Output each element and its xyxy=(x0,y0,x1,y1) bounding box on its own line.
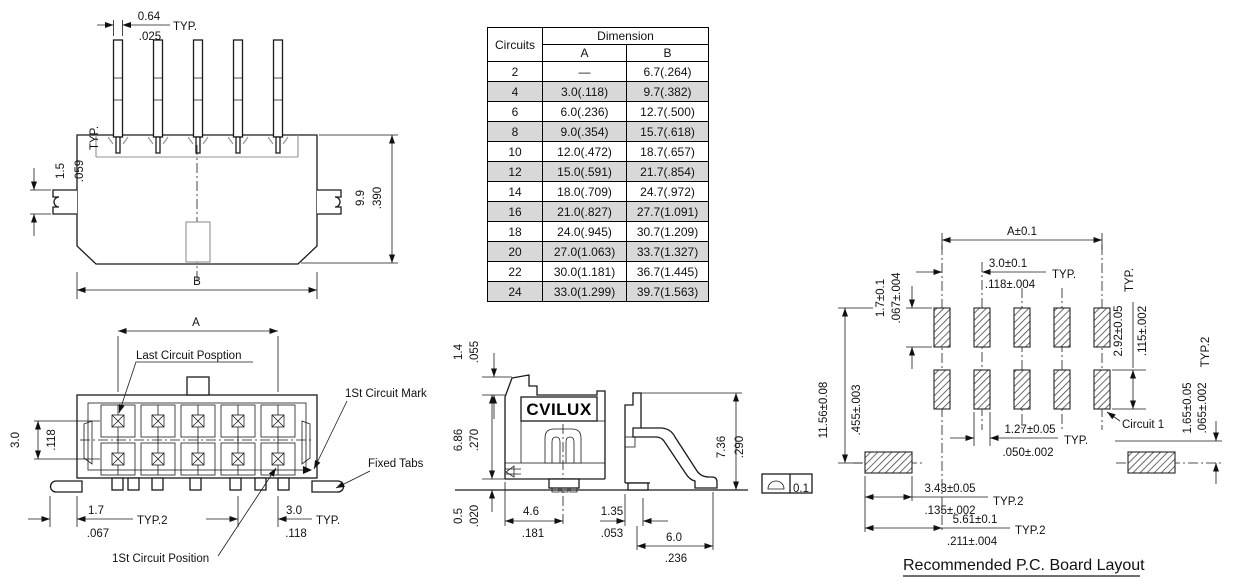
dim-latch-mm: 1.4 xyxy=(453,343,465,360)
dimension-lead-setback: 1.35 .053 xyxy=(600,494,668,540)
pcb-layout-title-text: Recommended P.C. Board Layout xyxy=(903,557,1145,574)
dim-pad-span: A±0.1 xyxy=(1007,226,1037,238)
dimension-circuit-pitch: 3.0 .118 TYP. xyxy=(206,496,340,540)
dimension-overall-width: B xyxy=(77,272,317,299)
rear-wall-profile xyxy=(625,393,641,483)
dim-tab-offset-in: .067 xyxy=(87,528,109,540)
table-row: 89.0(.354)15.7(.618) xyxy=(488,122,709,142)
cell-circuits: 8 xyxy=(488,122,543,142)
cell-b: 27.7(1.091) xyxy=(627,202,709,222)
dimension-foot-length: 6.0 .236 xyxy=(637,492,713,565)
dimension-table-container: Circuits Dimension A B 2—6.7(.264) 43.0(… xyxy=(487,27,709,302)
callout-first-circuit-mark: 1St Circuit Mark xyxy=(314,388,427,469)
right-nail-pad xyxy=(1128,452,1175,473)
cell-a: 27.0(1.063) xyxy=(543,242,627,262)
dimension-pad-width: 1.27±0.05 .050±.002 TYP. xyxy=(950,412,1088,459)
cell-b: 21.7(.854) xyxy=(627,162,709,182)
last-circuit-label: Last Circuit Posption xyxy=(136,350,241,362)
solder-tail xyxy=(549,479,579,488)
corner-typ2-label: TYP.2 xyxy=(1200,337,1212,367)
pad-centerlines xyxy=(853,245,1222,532)
standoff-lines xyxy=(505,463,521,477)
dimension-pin-width: 0.64 .025 TYP. xyxy=(97,11,197,43)
dim-row-gap-in: .115±.002 xyxy=(1137,306,1149,356)
cell-a: 33.0(1.299) xyxy=(543,282,627,302)
table-row: 1621.0(.827)27.7(1.091) xyxy=(488,202,709,222)
dimension-terminal-center: 4.6 .181 xyxy=(505,482,563,540)
cell-a: 21.0(.827) xyxy=(543,202,627,222)
dim-housing-in: .270 xyxy=(469,429,481,451)
dim-row-pitch-mm: 3.0 xyxy=(10,432,22,448)
dim-nail-offset-h-mm: 5.61±0.1 xyxy=(953,514,998,526)
engineering-drawing-sheet: 0.64 .025 TYP. 1.5 .059 TYP. 9.9 .390 B xyxy=(0,0,1241,582)
left-solder-foot xyxy=(51,481,83,492)
table-row: 1012.0(.472)18.7(.657) xyxy=(488,142,709,162)
callout-circuit-1: Circuit 1 xyxy=(1107,412,1164,431)
circuit-1-label: Circuit 1 xyxy=(1122,419,1164,431)
dimension-tab-offset: 1.7 .067 TYP.2 xyxy=(28,496,167,540)
dim-center-mm: 4.6 xyxy=(523,506,539,518)
dim-pad-pitch-in: .118±.004 xyxy=(985,279,1036,291)
table-header-row: Circuits Dimension xyxy=(488,28,709,45)
cell-circuits: 22 xyxy=(488,262,543,282)
cell-b: 18.7(.657) xyxy=(627,142,709,162)
dim-latch-in: .055 xyxy=(469,341,481,363)
dimension-pad-span: A±0.1 xyxy=(942,226,1102,250)
dim-tab-offset-typ: TYP.2 xyxy=(137,515,167,527)
dim-nail-offset-h-typ: TYP.2 xyxy=(1015,525,1045,537)
table-row: 1824.0(.945)30.7(1.209) xyxy=(488,222,709,242)
dim-circuit-pitch-mm: 3.0 xyxy=(286,505,302,517)
front-body-outline xyxy=(77,395,317,478)
brand-logo: CVILUX xyxy=(526,400,592,419)
side-view-smt: CVILUX 1.4 .055 6.86 .270 0.5 .020 xyxy=(453,341,812,565)
right-fixed-tab xyxy=(317,190,341,214)
dim-overall-height-mm: 7.36 xyxy=(716,436,728,458)
pcb-layout-title: Recommended P.C. Board Layout xyxy=(903,557,1145,576)
cell-b: 36.7(1.445) xyxy=(627,262,709,282)
dim-standoff-in: .020 xyxy=(469,505,481,527)
cell-b: 33.7(1.327) xyxy=(627,242,709,262)
dim-lead-mm: 1.35 xyxy=(601,506,623,518)
dimension-layout-height: 11.56±0.08 .455±.003 xyxy=(818,308,873,463)
cell-b: 6.7(.264) xyxy=(627,62,709,82)
dim-tab-in: .059 xyxy=(74,160,86,182)
dim-span-a-label: A xyxy=(192,317,200,329)
cell-b: 39.7(1.563) xyxy=(627,282,709,302)
cell-a: — xyxy=(543,62,627,82)
first-circuit-position-label: 1St Circuit Position xyxy=(112,553,209,565)
left-fixed-tab xyxy=(53,190,77,214)
dim-pin-width-in: .025 xyxy=(139,31,161,43)
cell-circuits: 2 xyxy=(488,62,543,82)
left-nail-pad xyxy=(865,452,912,473)
dim-layout-height-mm: 11.56±0.08 xyxy=(818,382,830,439)
dim-nail-width-mm: 3.43±0.05 xyxy=(924,483,975,495)
polarizing-post xyxy=(186,222,210,262)
column-header-b: B xyxy=(627,45,709,62)
dim-tab-offset-mm: 1.7 xyxy=(88,505,104,517)
flatness-control-frame: 0.1 xyxy=(762,474,812,495)
cell-b: 30.7(1.209) xyxy=(627,222,709,242)
dim-pin-width-mm: 0.64 xyxy=(138,11,161,23)
cell-a: 9.0(.354) xyxy=(543,122,627,142)
dim-center-in: .181 xyxy=(522,528,544,540)
dim-housing-mm: 6.86 xyxy=(453,429,465,451)
dim-circuit-pitch-in: .118 xyxy=(285,528,307,540)
column-header-dimension: Dimension xyxy=(543,28,709,45)
column-header-a: A xyxy=(543,45,627,62)
cell-b: 9.7(.382) xyxy=(627,82,709,102)
dim-row-gap-typ: TYP. xyxy=(1124,268,1136,292)
dim-tab-mm: 1.5 xyxy=(55,163,67,179)
table-row: 43.0(.118)9.7(.382) xyxy=(488,82,709,102)
dim-pin-width-typ: TYP. xyxy=(173,21,197,33)
cell-b: 12.7(.500) xyxy=(627,102,709,122)
cell-a: 24.0(.945) xyxy=(543,222,627,242)
dim-pad-width-mm: 1.27±0.05 xyxy=(1004,424,1055,436)
flatness-value: 0.1 xyxy=(793,483,809,495)
dim-overall-height-in: .290 xyxy=(734,436,746,458)
cell-circuits: 18 xyxy=(488,222,543,242)
cell-circuits: 16 xyxy=(488,202,543,222)
cell-circuits: 14 xyxy=(488,182,543,202)
dim-pad-length-mm: 1.7±0.1 xyxy=(875,279,887,317)
table-row: 2027.0(1.063)33.7(1.327) xyxy=(488,242,709,262)
dim-pad-pitch-typ: TYP. xyxy=(1052,269,1076,281)
dim-overall-width-label: B xyxy=(193,276,201,288)
dim-standoff-mm: 0.5 xyxy=(453,508,465,524)
dimension-row-gap: 2.92±0.05 .115±.002 TYP. xyxy=(1112,268,1149,409)
cell-circuits: 6 xyxy=(488,102,543,122)
cell-circuits: 4 xyxy=(488,82,543,102)
callout-fixed-tabs: Fixed Tabs xyxy=(336,458,424,488)
dim-pad-width-typ: TYP. xyxy=(1064,435,1088,447)
dim-pad-width-in: .050±.002 xyxy=(1002,447,1053,459)
cell-a: 3.0(.118) xyxy=(543,82,627,102)
housing-left-profile xyxy=(505,378,512,479)
dim-body-height-in: .390 xyxy=(372,187,384,209)
dim-layout-height-in: .455±.003 xyxy=(851,384,863,435)
cell-a: 15.0(.591) xyxy=(543,162,627,182)
dim-tab-typ: TYP. xyxy=(89,126,101,150)
table-row: 66.0(.236)12.7(.500) xyxy=(488,102,709,122)
polarizing-key xyxy=(187,377,209,395)
dim-foot-in: .236 xyxy=(665,553,687,565)
dim-row-gap-mm: 2.92±0.05 xyxy=(1113,305,1125,356)
circuit-pads xyxy=(934,308,1110,409)
dim-lead-in: .053 xyxy=(601,528,623,540)
dimension-housing-height: 6.86 .270 xyxy=(453,395,505,479)
dimension-latch-height: 1.4 .055 xyxy=(453,341,512,419)
table-row: 2—6.7(.264) xyxy=(488,62,709,82)
cell-a: 12.0(.472) xyxy=(543,142,627,162)
dim-nail-offset-h-in: .211±.004 xyxy=(947,536,998,548)
dimension-nail-pad-offset-h: 5.61±0.1 .211±.004 TYP.2 xyxy=(865,514,1045,548)
column-header-circuits: Circuits xyxy=(488,28,543,62)
dim-circuit-pitch-typ: TYP. xyxy=(316,515,340,527)
dimension-pad-pitch: 3.0±0.1 .118±.004 TYP. xyxy=(916,258,1076,291)
cell-circuits: 20 xyxy=(488,242,543,262)
table-row: 1418.0(.709)24.7(.972) xyxy=(488,182,709,202)
cell-circuits: 12 xyxy=(488,162,543,182)
cell-circuits: 24 xyxy=(488,282,543,302)
wall-notch xyxy=(625,437,635,447)
circuits-dimension-table: Circuits Dimension A B 2—6.7(.264) 43.0(… xyxy=(487,27,709,302)
dim-nail-offset-v-mm: 1.65±0.05 xyxy=(1182,382,1194,433)
first-circuit-mark-label: 1St Circuit Mark xyxy=(345,388,427,400)
table-row: 1215.0(.591)21.7(.854) xyxy=(488,162,709,182)
cell-a: 6.0(.236) xyxy=(543,102,627,122)
pcb-layout: A±0.1 3.0±0.1 .118±.004 TYP. 1.7±0.1 .06… xyxy=(818,226,1222,576)
dim-pad-pitch-mm: 3.0±0.1 xyxy=(989,258,1027,270)
dim-body-height-mm: 9.9 xyxy=(355,190,367,206)
dimension-standoff: 0.5 .020 xyxy=(453,490,492,527)
dim-row-pitch-in: .118 xyxy=(46,429,58,451)
cell-a: 30.0(1.181) xyxy=(543,262,627,282)
top-side-view: 0.64 .025 TYP. 1.5 .059 TYP. 9.9 .390 B xyxy=(30,11,398,299)
dim-nail-width-typ: TYP.2 xyxy=(993,496,1023,508)
cell-a: 18.0(.709) xyxy=(543,182,627,202)
cell-b: 15.7(.618) xyxy=(627,122,709,142)
dimension-pad-length: 1.7±0.1 .067±.004 xyxy=(875,272,932,369)
table-row: 2433.0(1.299)39.7(1.563) xyxy=(488,282,709,302)
front-view: A 3.0 .118 1.7 .067 TYP.2 3.0 .118 TYP. xyxy=(10,317,427,565)
dimension-nail-pad-width: 3.43±0.05 .135±.002 TYP.2 xyxy=(865,476,1023,532)
smt-lead xyxy=(633,428,717,488)
wall-foot xyxy=(628,483,648,490)
cell-b: 24.7(.972) xyxy=(627,182,709,202)
dim-pad-length-in: .067±.004 xyxy=(891,272,903,324)
fixed-tabs-label: Fixed Tabs xyxy=(368,458,424,470)
dim-nail-offset-v-in: .065±.002 xyxy=(1197,382,1209,433)
cell-circuits: 10 xyxy=(488,142,543,162)
dim-foot-mm: 6.0 xyxy=(666,532,682,544)
table-row: 2230.0(1.181)36.7(1.445) xyxy=(488,262,709,282)
